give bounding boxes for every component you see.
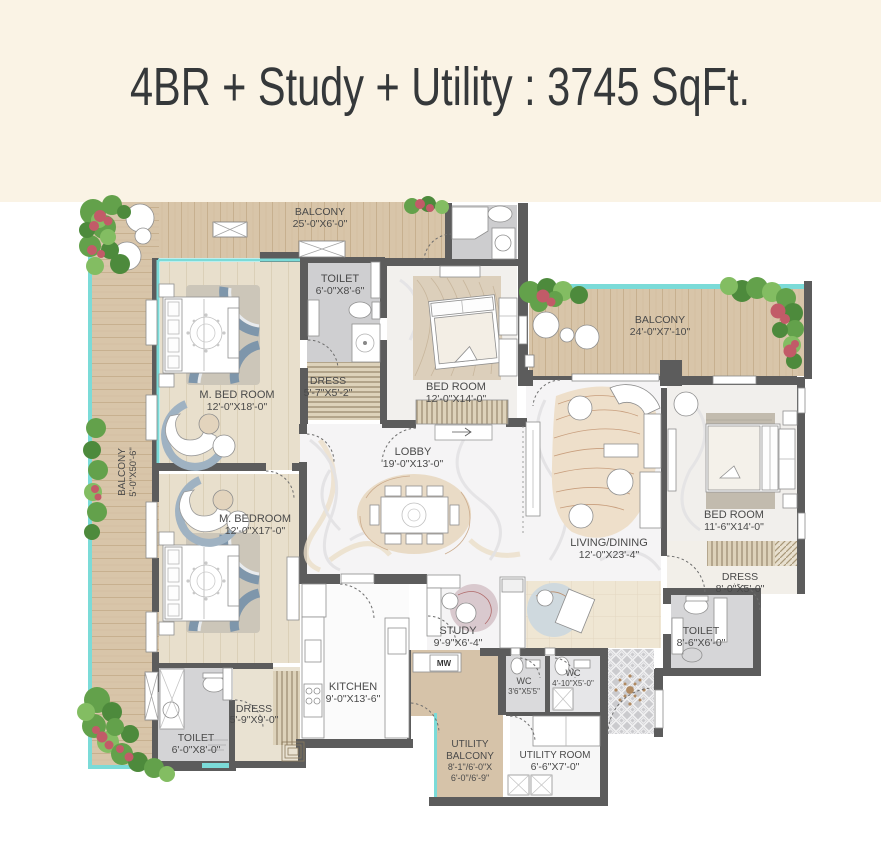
svg-text:5'-9"X9'-0": 5'-9"X9'-0" [230,714,279,726]
svg-text:WC: WC [517,676,532,686]
svg-text:TOILET: TOILET [321,273,360,285]
svg-text:LOBBY: LOBBY [395,446,432,458]
svg-text:6'-0"/6'-9": 6'-0"/6'-9" [451,773,489,783]
svg-text:BALCONY: BALCONY [446,751,494,762]
svg-text:5'-0"X50'-6": 5'-0"X50'-6" [128,447,139,496]
svg-text:UTILITY ROOM: UTILITY ROOM [520,750,591,761]
svg-text:12'-0"X14'-0": 12'-0"X14'-0" [426,393,487,405]
svg-text:25'-0"X6'-0": 25'-0"X6'-0" [293,218,348,230]
svg-text:BALCONY: BALCONY [295,206,345,218]
svg-text:4BR + Study + Utility : 3745 S: 4BR + Study + Utility : 3745 SqFt. [130,57,750,117]
svg-text:12'-0"X18'-0": 12'-0"X18'-0" [207,401,268,413]
svg-text:LIVING/DINING: LIVING/DINING [570,537,648,549]
svg-text:12'-0"X17'-0": 12'-0"X17'-0" [225,525,286,537]
svg-text:BED ROOM: BED ROOM [704,509,764,521]
svg-text:M. BED ROOM: M. BED ROOM [199,389,274,401]
svg-text:8'-6"X6'-0": 8'-6"X6'-0" [677,637,726,649]
svg-text:8'-0"X5'-0": 8'-0"X5'-0" [716,583,765,595]
svg-text:TOILET: TOILET [683,625,720,637]
svg-text:11'-6"X14'-0": 11'-6"X14'-0" [704,521,764,533]
svg-text:3'6"X5'5": 3'6"X5'5" [508,687,540,696]
svg-text:M. BEDROOM: M. BEDROOM [219,513,291,525]
svg-text:4'-10"X5'-0": 4'-10"X5'-0" [552,679,594,688]
svg-text:6'-0"X8'-6": 6'-0"X8'-6" [316,285,365,297]
svg-text:5'-7"X5'-2": 5'-7"X5'-2" [304,387,353,399]
svg-text:19'-0"X13'-0": 19'-0"X13'-0" [383,458,444,470]
svg-text:KITCHEN: KITCHEN [329,681,377,693]
svg-text:STUDY: STUDY [439,625,477,637]
svg-text:BALCONY: BALCONY [635,314,685,326]
svg-text:MW: MW [437,659,452,668]
svg-text:WC: WC [566,668,581,678]
svg-text:12'-0"X23'-4": 12'-0"X23'-4" [579,549,640,561]
svg-text:DRESS: DRESS [722,571,758,583]
svg-text:UTILITY: UTILITY [451,739,489,750]
svg-text:6'-6"X7'-0": 6'-6"X7'-0" [531,761,580,773]
svg-text:24'-0"X7'-10": 24'-0"X7'-10" [630,326,691,338]
svg-text:DRESS: DRESS [310,375,346,387]
svg-text:TOILET: TOILET [178,732,215,744]
svg-text:9'-0"X13'-6": 9'-0"X13'-6" [326,693,381,705]
svg-text:8'-1"/6'-0"X: 8'-1"/6'-0"X [448,762,492,772]
svg-text:9'-9"X6'-4": 9'-9"X6'-4" [434,637,483,649]
svg-text:BED ROOM: BED ROOM [426,381,486,393]
svg-text:6'-0"X8'-0": 6'-0"X8'-0" [172,744,221,756]
svg-text:BALCONY: BALCONY [117,448,128,496]
